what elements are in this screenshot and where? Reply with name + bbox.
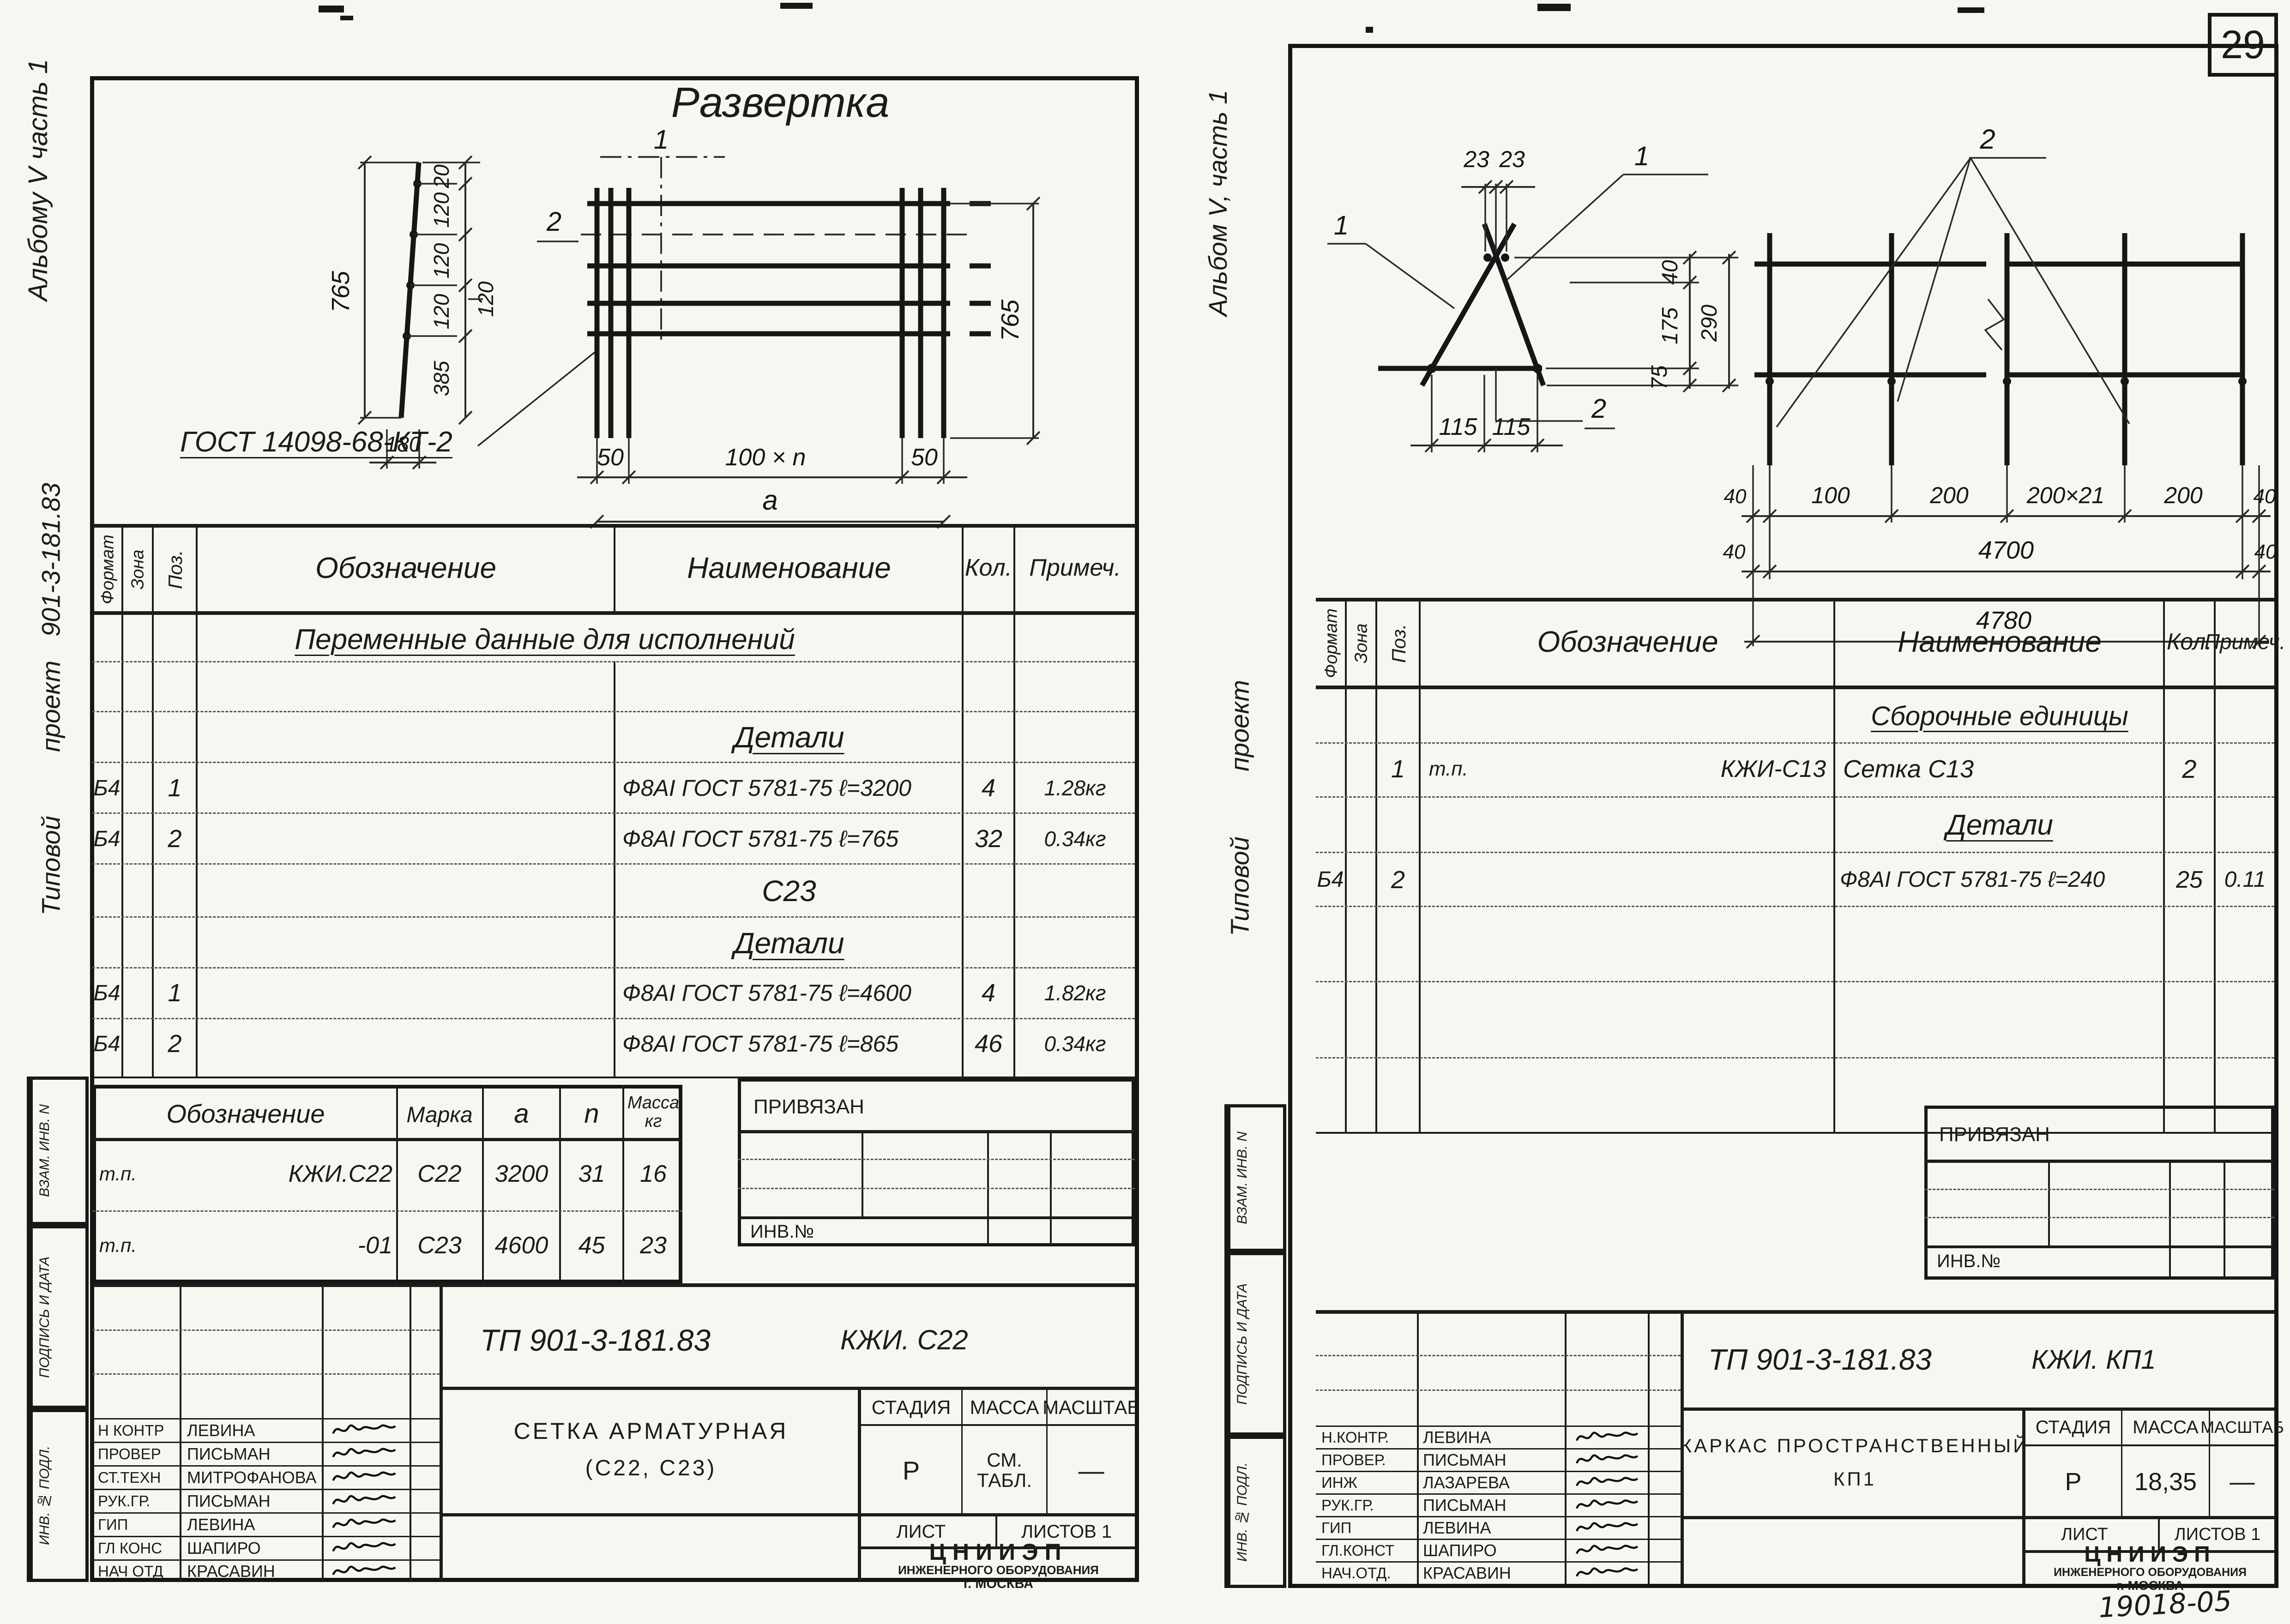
signature: [1569, 1563, 1646, 1583]
spec-section-title: Переменные данные для исполнений: [199, 619, 891, 660]
mesh-elevation-drawing: 2 40 100 200 200×21 200 40 40 4700 40 47: [1731, 115, 2278, 674]
dim-385: 385: [429, 361, 453, 396]
dim-120a: 120: [429, 192, 453, 228]
scale-label: МАСШТАБ: [1048, 1392, 1135, 1423]
dim-120b: 120: [429, 243, 453, 278]
mass-label: МАССА: [2122, 1412, 2209, 1443]
signature: [325, 1514, 404, 1535]
col-header-prim: Примеч.: [2216, 621, 2274, 662]
dim-40-edge-l1: 40: [1724, 485, 1747, 508]
inv-no-label: ИНВ.№: [1937, 1251, 2038, 1272]
margin-tipovoy-right: Типовой: [1219, 803, 1260, 969]
margin-box-podpis-right: ПОДПИСЬ И ДАТА: [1224, 1252, 1286, 1436]
dim-115a: 115: [1439, 414, 1478, 440]
doc-number: ТП 901-3-181.83: [480, 1315, 757, 1365]
dim-23b: 23: [1499, 146, 1525, 172]
signature: [1569, 1450, 1646, 1470]
dim-50-left: 50: [597, 444, 624, 471]
margin-album-right: Альбом V, часть 1: [1196, 69, 1240, 337]
dim-200b: 200: [2163, 482, 2203, 508]
stage-value: Р: [861, 1433, 961, 1507]
col-header-pos: Поз.: [1383, 602, 1415, 685]
signature: [325, 1467, 404, 1488]
margin-box-vzam-right: ВЗАМ. ИНВ. N: [1224, 1104, 1286, 1252]
dim-20: 20: [429, 164, 453, 189]
privyazan-label: ПРИВЯЗАН: [1939, 1121, 2087, 1149]
scanned-drawing-page: 29 Альбому V часть 1 901-3-181.83 проект…: [0, 0, 2290, 1620]
drawing-name: КАРКАС ПРОСТРАНСТВЕННЫЙ КП1: [1687, 1421, 2022, 1504]
doc-code: КЖИ. КП1: [2031, 1336, 2253, 1383]
signature: [1569, 1518, 1646, 1538]
col-header-zone: Зона: [1348, 602, 1375, 685]
scale-value: —: [2210, 1450, 2274, 1514]
scale-label: МАСШТАБ: [2210, 1412, 2274, 1443]
spec-group-c23: С23: [616, 870, 962, 912]
spec-assembly-title: Сборочные единицы: [1836, 695, 2163, 737]
callout-1: 1: [654, 125, 669, 155]
param-header-n: n: [561, 1096, 622, 1131]
scale-value: —: [1048, 1433, 1135, 1507]
dim-100xn: 100 × n: [725, 444, 806, 471]
param-header-oboz: Обозначение: [98, 1094, 393, 1133]
signature: [1569, 1540, 1646, 1561]
dim-50-right: 50: [911, 444, 938, 471]
col-header-oboz: Обозначение: [1422, 619, 1833, 665]
mass-value: 18,35: [2122, 1450, 2209, 1514]
stage-value: Р: [2025, 1450, 2121, 1514]
callout-1-right: 1: [1634, 141, 1649, 171]
callout-2: 2: [546, 207, 561, 237]
margin-tipovoy-left: Типовой: [30, 780, 72, 951]
dim-200a: 200: [1929, 482, 1969, 508]
dim-175: 175: [1658, 307, 1682, 344]
margin-album-left: Альбому V часть 1: [16, 44, 60, 316]
dim-765-left: 765: [327, 271, 355, 313]
signature: [1569, 1427, 1646, 1448]
dim-a: a: [762, 485, 777, 516]
signature: [325, 1561, 404, 1582]
privyazan-label: ПРИВЯЗАН: [753, 1093, 901, 1121]
margin-box-inv-right: ИНВ. № ПОДЛ.: [1224, 1436, 1286, 1588]
signature: [325, 1420, 404, 1441]
callout-2: 2: [1591, 394, 1606, 424]
organization: ЦНИИЭП ИНЖЕНЕРНОГО ОБОРУДОВАНИЯ г. МОСКВ…: [2028, 1552, 2272, 1583]
col-header-pos: Поз.: [159, 529, 192, 611]
dim-75: 75: [1647, 365, 1672, 390]
param-header-marka: Марка: [398, 1098, 481, 1132]
margin-box-inv-left: ИНВ. № ПОДЛ.: [27, 1409, 89, 1582]
col-header-oboz: Обозначение: [199, 545, 613, 591]
doc-number: ТП 901-3-181.83: [1708, 1334, 1985, 1385]
mass-label: МАССА: [963, 1392, 1046, 1423]
page-number: 29: [2208, 13, 2278, 77]
dim-120c: 120: [429, 294, 453, 329]
margin-box-vzam-left: ВЗАМ. ИНВ. N: [27, 1077, 89, 1225]
stage-label: СТАДИЯ: [2025, 1412, 2121, 1443]
signature: [1569, 1495, 1646, 1516]
margin-proekt-right: проект: [1219, 667, 1260, 785]
signature: [325, 1491, 404, 1511]
development-drawing: 20 120 120 120 385 120 765 180 1 2: [166, 115, 1090, 568]
callout-2: 2: [1979, 124, 1995, 155]
col-header-naim: Наименование: [1836, 619, 2163, 665]
dim-40-edge-r1: 40: [2254, 485, 2276, 508]
gost-weld-note: ГОСТ 14098-68-КТ-2: [180, 426, 480, 458]
col-header-format: Формат: [1318, 602, 1345, 685]
callout-1-left: 1: [1334, 211, 1349, 241]
col-header-naim: Наименование: [616, 545, 962, 591]
spec-details-1: Детали: [616, 716, 962, 758]
param-header-massa: Массакг: [624, 1089, 682, 1136]
dim-40: 40: [1658, 260, 1682, 285]
inv-no-label: ИНВ.№: [750, 1221, 852, 1242]
signature: [325, 1444, 404, 1464]
dim-40-edge-l2: 40: [1723, 541, 1746, 563]
col-header-prim: Примеч.: [1015, 547, 1135, 589]
spec-details: Детали: [1836, 803, 2163, 847]
organization: ЦНИИЭП ИНЖЕНЕРНОГО ОБОРУДОВАНИЯ г. МОСКВ…: [863, 1549, 1133, 1582]
margin-number-left: 901-3-181.83: [30, 475, 72, 644]
dim-115b: 115: [1492, 414, 1531, 440]
drawing-name: СЕТКА АРМАТУРНАЯ (С22, С23): [446, 1403, 856, 1496]
signature: [1569, 1473, 1646, 1493]
col-header-format: Формат: [94, 529, 122, 611]
col-header-zone: Зона: [124, 529, 152, 611]
mass-value: СМ.ТАБЛ.: [963, 1438, 1046, 1503]
dim-100: 100: [1811, 482, 1850, 508]
stage-label: СТАДИЯ: [861, 1392, 961, 1423]
dim-40-edge-r2: 40: [2254, 541, 2277, 563]
signature: [325, 1538, 404, 1558]
col-header-kol: Кол.: [964, 547, 1013, 589]
aframe-section-drawing: 23 23 40 175 75 290 115 115 1 1 2: [1311, 120, 1754, 480]
dim-23a: 23: [1463, 146, 1489, 172]
dim-290: 290: [1697, 305, 1722, 342]
dim-4700: 4700: [1978, 536, 2034, 564]
margin-box-podpis-left: ПОДПИСЬ И ДАТА: [27, 1225, 89, 1409]
spec-details-2: Детали: [616, 922, 962, 964]
margin-proekt-left: проект: [30, 646, 72, 766]
param-header-a: a: [484, 1096, 559, 1131]
doc-code: КЖИ. С22: [840, 1317, 1080, 1363]
dim-200x21: 200×21: [2026, 482, 2104, 508]
dim-765-right: 765: [996, 299, 1024, 341]
